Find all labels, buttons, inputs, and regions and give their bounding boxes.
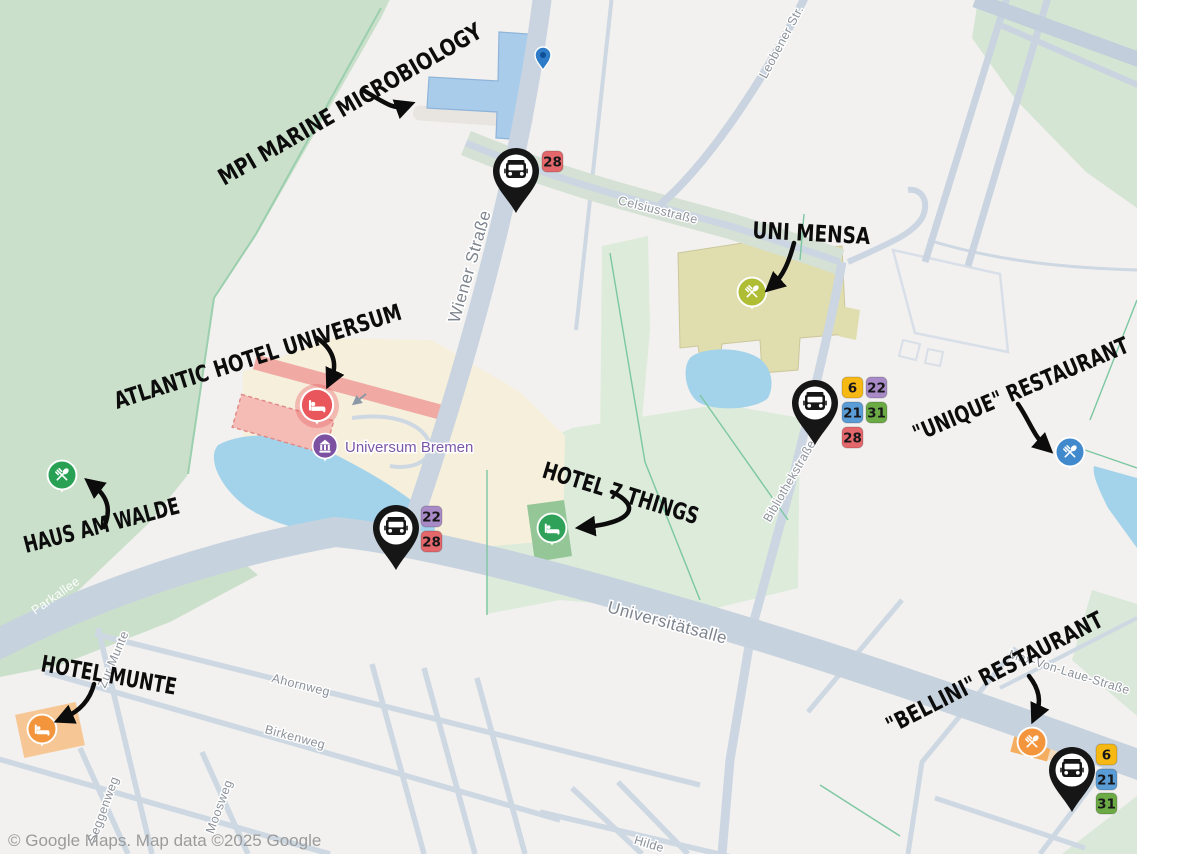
svg-text:6: 6: [1102, 747, 1111, 763]
route-badge-21: 21: [1096, 769, 1117, 790]
route-badge-6: 6: [842, 377, 863, 398]
svg-text:28: 28: [422, 534, 441, 550]
svg-text:22: 22: [422, 509, 441, 525]
svg-text:22: 22: [867, 380, 886, 396]
svg-text:28: 28: [543, 154, 562, 170]
route-badge-21: 21: [842, 402, 863, 423]
svg-text:31: 31: [1097, 796, 1116, 812]
route-badge-28: 28: [421, 531, 442, 552]
map-attribution: © Google Maps. Map data ©2025 Google: [8, 831, 321, 850]
svg-text:21: 21: [1097, 772, 1116, 788]
svg-text:28: 28: [843, 430, 862, 446]
route-badge-28: 28: [842, 427, 863, 448]
map-canvas[interactable]: Wiener Straße Celsiusstraße Leobener Str…: [0, 0, 1200, 854]
route-badge-28: 28: [542, 151, 563, 172]
route-badge-31: 31: [1096, 793, 1117, 814]
route-badge-31: 31: [866, 402, 887, 423]
svg-text:6: 6: [848, 380, 857, 396]
route-badge-22: 22: [421, 506, 442, 527]
route-badge-6: 6: [1096, 744, 1117, 765]
svg-text:21: 21: [843, 405, 862, 421]
svg-text:31: 31: [867, 405, 886, 421]
map-screenshot: Wiener Straße Celsiusstraße Leobener Str…: [0, 0, 1200, 854]
route-badge-22: 22: [866, 377, 887, 398]
universum-bremen-label[interactable]: Universum Bremen: [345, 439, 473, 456]
